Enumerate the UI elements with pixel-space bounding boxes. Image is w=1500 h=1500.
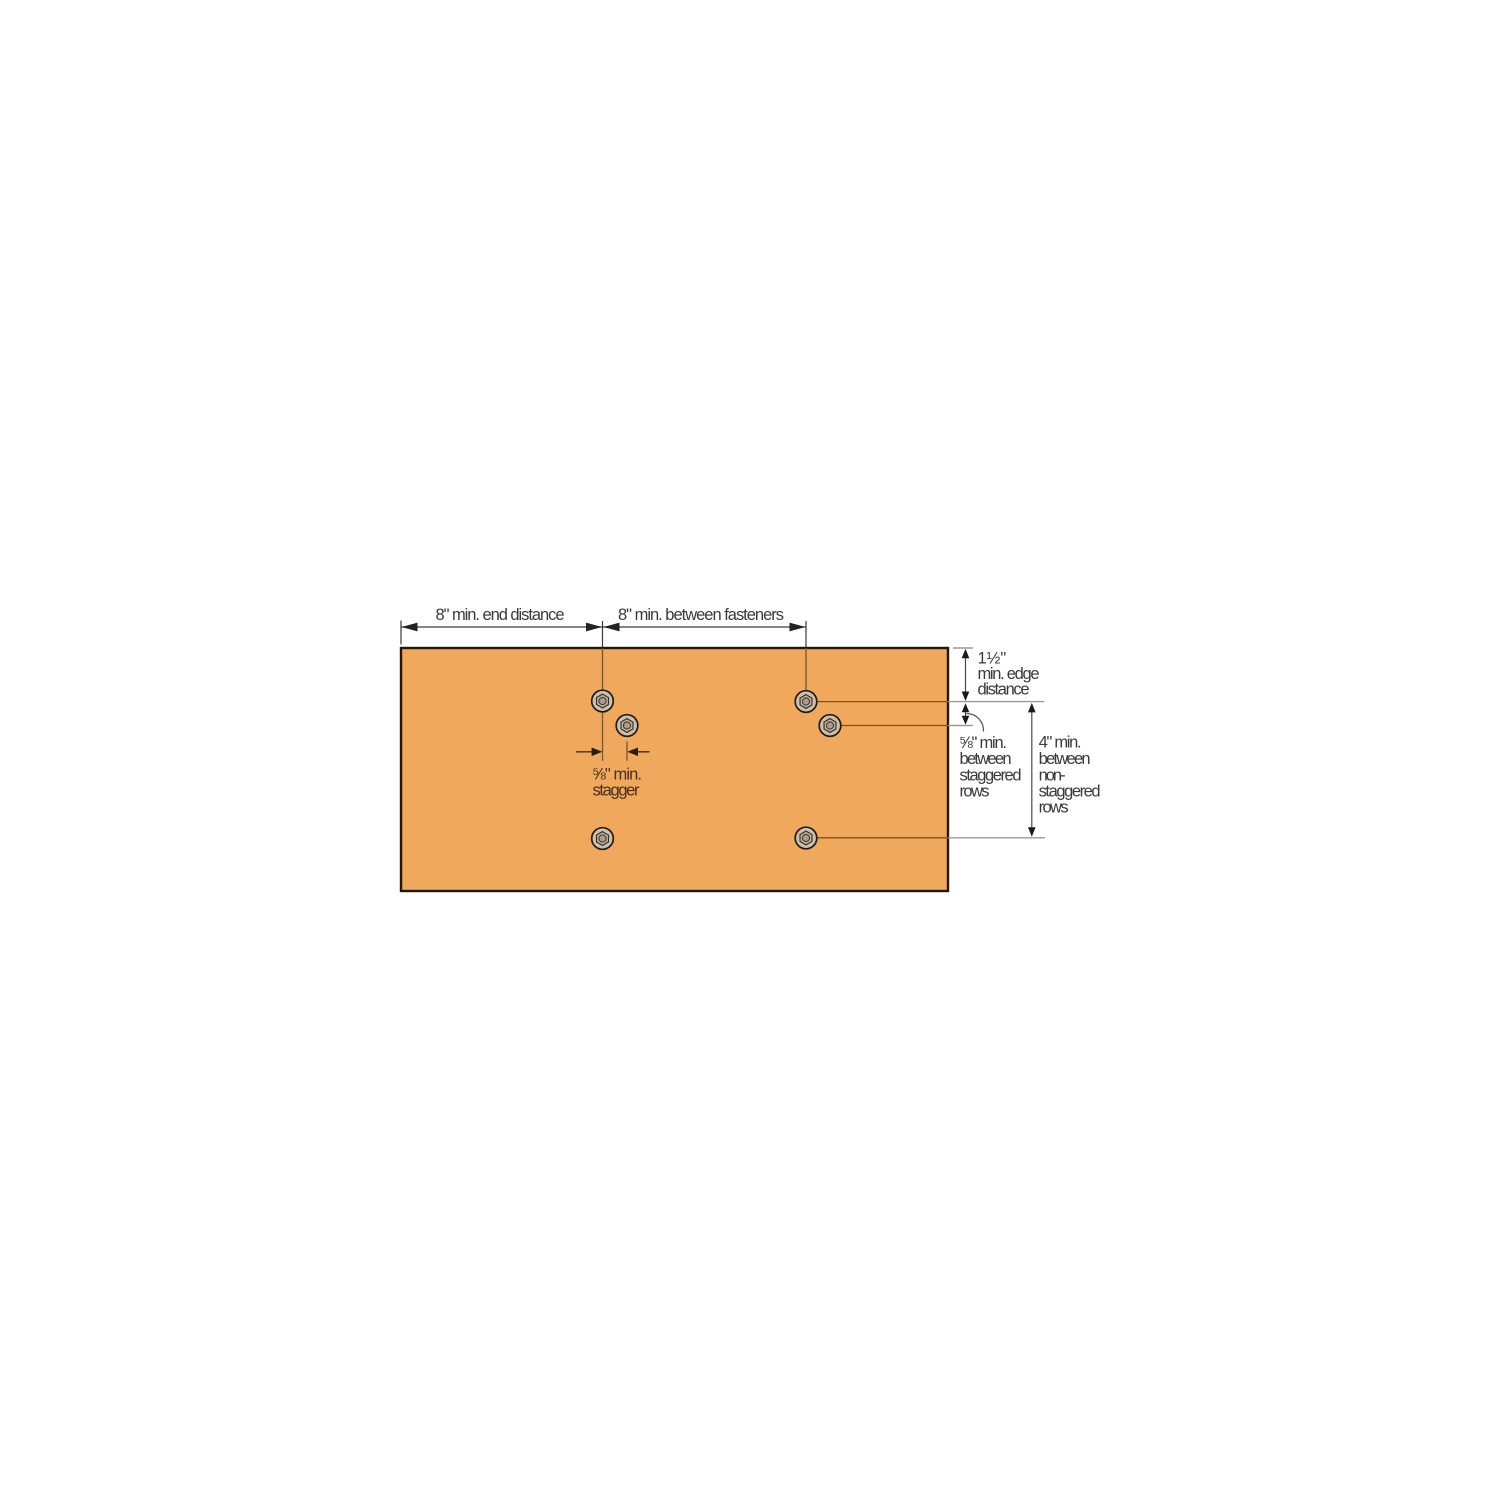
svg-text:8" min. between fasteners: 8" min. between fasteners — [618, 606, 784, 624]
svg-text:between: between — [1039, 750, 1091, 768]
svg-text:between: between — [960, 750, 1012, 768]
svg-text:8" min. end distance: 8" min. end distance — [436, 606, 565, 624]
svg-text:stagger: stagger — [593, 781, 641, 799]
svg-text:rows: rows — [1039, 799, 1069, 817]
svg-text:distance: distance — [978, 681, 1030, 699]
svg-text:4" min.: 4" min. — [1039, 734, 1082, 752]
svg-text:rows: rows — [960, 782, 990, 800]
